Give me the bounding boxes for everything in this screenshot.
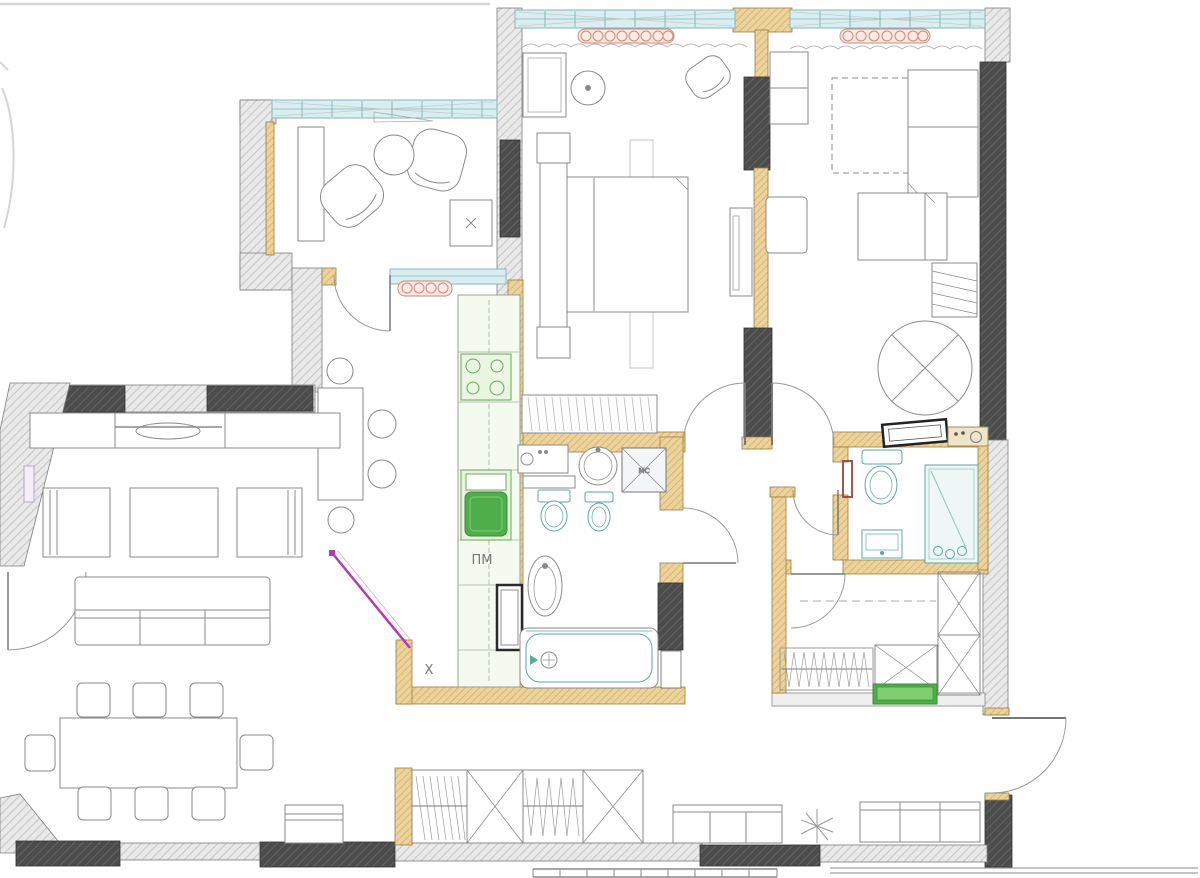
entry-bench-right <box>860 802 980 842</box>
kitchen-sliding-door <box>329 550 413 648</box>
wardrobe-bench <box>873 684 937 704</box>
armchair-right <box>237 488 302 557</box>
wall-kitchen-corner <box>396 640 412 704</box>
wall-right-dark-pier <box>980 62 1006 440</box>
kids-round-rug <box>878 321 972 415</box>
loggia-round-table <box>374 135 414 175</box>
wall-wardrobe-left <box>772 497 786 693</box>
master-nightstand-top <box>537 133 570 163</box>
window-master <box>515 10 735 28</box>
pedestal-sink <box>528 556 562 616</box>
ensuite-counter-sink <box>948 427 988 446</box>
door-kids <box>772 383 834 445</box>
room-living-dining <box>24 413 343 843</box>
duct-box <box>661 651 681 688</box>
room-kitchen: ПМ X <box>318 281 522 687</box>
low-cabinet <box>285 805 343 843</box>
master-dresser <box>523 53 566 117</box>
door-hall-to-entry <box>793 490 838 535</box>
wall-sconce <box>24 466 34 502</box>
bidet <box>585 492 613 531</box>
kids-radiator <box>840 29 930 43</box>
wall-bottom-1 <box>118 843 262 860</box>
ensuite-toilet <box>862 450 902 504</box>
master-double-bed <box>567 177 688 312</box>
dining-chair <box>133 683 166 717</box>
room-kids-bedroom <box>766 29 982 415</box>
toilet <box>538 490 570 531</box>
master-nightstand-bottom <box>537 327 570 358</box>
kitchen-radiator <box>398 281 452 296</box>
dining-table <box>60 718 237 788</box>
wall-loggia-right-pier <box>500 140 520 237</box>
floor-plan-canvas: ПМ X <box>0 0 1200 878</box>
wall-living-top-pier-2 <box>207 386 313 411</box>
wall-kitchen-bath-bottom <box>396 687 685 704</box>
kitchen-sink-unit <box>461 470 511 540</box>
dishwasher-label: ПМ <box>472 553 493 568</box>
loggia-wall-step <box>240 253 292 290</box>
door-living-left <box>8 572 86 650</box>
dining-chair <box>190 683 223 717</box>
ensuite-washer <box>882 419 948 446</box>
bottom-wardrobe-row <box>412 770 643 843</box>
kids-armchair-2 <box>766 197 807 253</box>
floor-plan-svg: ПМ X <box>0 0 1200 878</box>
shelf-x-1 <box>467 770 523 843</box>
door-loggia-kitchen <box>334 275 390 331</box>
shaft-label: MC <box>639 467 650 475</box>
ensuite-vanity <box>862 530 902 558</box>
wall-bottom-2 <box>393 843 702 861</box>
dining-chair <box>25 735 55 771</box>
dining-chair <box>78 787 111 820</box>
round-sink <box>579 447 617 485</box>
kids-bed-2 <box>858 193 947 260</box>
wardrobe-hanging-rod <box>780 648 873 690</box>
window-loggia <box>272 100 497 122</box>
wall-bottom-pier-2 <box>260 842 395 867</box>
kids-ladder-shelf <box>932 263 977 317</box>
wall-center-pier-lower <box>744 328 772 440</box>
room-loggia <box>298 125 492 246</box>
dining-chair <box>77 683 110 717</box>
door-entrance <box>992 718 1066 793</box>
kids-ottoman <box>770 88 808 124</box>
wardrobe-shelf-box <box>875 645 937 690</box>
room-wardrobe <box>780 572 980 704</box>
coffee-table <box>130 488 218 557</box>
bathtub <box>520 628 658 688</box>
door-master <box>683 383 745 445</box>
wall-center-stem <box>755 30 768 79</box>
entrance-jamb-top <box>985 708 1009 715</box>
window-kids <box>790 10 985 28</box>
kids-bed-future-dashed <box>832 78 908 173</box>
shaft: MC <box>622 448 666 492</box>
wall-ensuite-right-lining <box>978 430 988 570</box>
master-accent-chair <box>681 51 735 103</box>
wall-right-bottom-pier <box>985 795 1012 867</box>
wall-bottom-pier-1 <box>16 841 120 866</box>
ensuite-door-leaf <box>843 461 852 497</box>
shelf-x-2 <box>583 770 643 843</box>
wall-right-top-corner <box>985 8 1010 62</box>
balcony-railing <box>533 868 1198 877</box>
wall-ensuite-left-1 <box>833 447 848 462</box>
armchair-left <box>43 488 110 557</box>
master-curtain <box>523 44 747 47</box>
wall-bottom-pier-3 <box>700 845 820 866</box>
room-main-bathroom: MC <box>518 445 666 688</box>
master-foot-wardrobe <box>522 395 657 433</box>
wall-center-tee <box>733 8 792 32</box>
entry-bench-left <box>673 805 782 843</box>
sofa <box>75 577 270 645</box>
wall-bottom-3 <box>818 845 987 862</box>
wardrobe-shelving-column <box>938 572 980 695</box>
kitchen-x-label: X <box>425 663 434 678</box>
wall-kitchen-left <box>292 268 322 392</box>
wall-bath-right-stub <box>660 563 683 583</box>
master-pouf <box>571 71 605 105</box>
dining-set <box>25 683 273 820</box>
wall-bath-right-pier <box>658 583 683 650</box>
hanging-section-2 <box>523 778 583 836</box>
wall-center-pier-upper <box>744 77 770 170</box>
kitchen-hob <box>461 354 511 400</box>
room-master-bedroom <box>522 29 752 433</box>
tv-console <box>30 413 340 448</box>
washing-machine <box>518 445 575 488</box>
kids-armchair-1 <box>770 52 808 88</box>
dining-chair <box>135 787 168 820</box>
ensuite-shower <box>925 465 978 563</box>
hanging-section-1 <box>412 776 467 840</box>
loggia-bench <box>298 127 324 241</box>
dining-chair <box>240 735 273 770</box>
master-tv-stand <box>730 208 752 296</box>
wall-hall-stub <box>770 487 795 497</box>
loggia-side-table <box>450 200 492 246</box>
room-entry <box>673 802 980 843</box>
entrance-jamb-bottom <box>985 793 1009 800</box>
coat-rack <box>801 809 833 843</box>
master-radiator <box>578 29 674 43</box>
kids-curtain <box>790 46 982 49</box>
door-main-bathroom <box>683 508 738 563</box>
kitchen-fridge <box>497 585 522 650</box>
wall-center-cap <box>742 437 772 449</box>
master-headboard <box>540 163 567 327</box>
loggia-wall-lining <box>266 122 274 255</box>
kids-bed-1 <box>908 70 978 197</box>
wardrobe-row-pier <box>395 768 412 845</box>
wall-ensuite-left-2 <box>833 495 848 560</box>
dining-chair <box>192 787 225 820</box>
